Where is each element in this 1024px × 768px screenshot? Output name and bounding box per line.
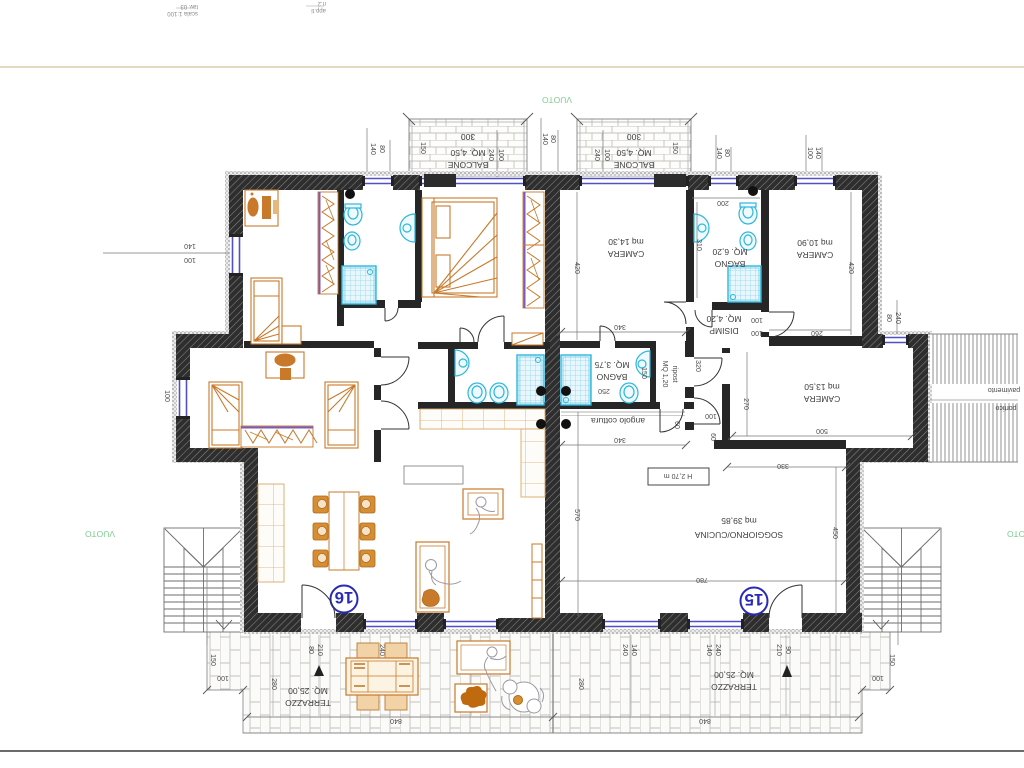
- svg-text:140: 140: [715, 147, 722, 159]
- svg-text:100: 100: [705, 412, 717, 419]
- svg-text:SOGGIORNO/CUCINA: SOGGIORNO/CUCINA: [695, 530, 784, 540]
- svg-text:300: 300: [461, 132, 475, 142]
- svg-text:270: 270: [742, 398, 749, 410]
- svg-text:840: 840: [699, 717, 711, 724]
- svg-text:BALCONE: BALCONE: [613, 160, 654, 170]
- svg-text:pavimento: pavimento: [988, 386, 1020, 393]
- svg-text:140: 140: [814, 147, 821, 159]
- svg-text:80: 80: [378, 145, 385, 153]
- svg-text:80: 80: [885, 314, 892, 322]
- svg-text:portico: portico: [995, 404, 1016, 411]
- svg-text:MQ. 4,50: MQ. 4,50: [616, 148, 651, 158]
- svg-text:100: 100: [872, 674, 884, 681]
- svg-text:MQ. 25,00: MQ. 25,00: [714, 670, 754, 680]
- svg-text:TERRAZZO: TERRAZZO: [285, 698, 331, 708]
- svg-text:90: 90: [784, 646, 791, 654]
- svg-text:scala 1:100: scala 1:100: [167, 10, 198, 16]
- svg-text:100: 100: [806, 147, 813, 159]
- svg-text:280: 280: [270, 678, 277, 690]
- svg-text:BAGNO: BAGNO: [714, 259, 745, 269]
- svg-text:H 2,70 m: H 2,70 m: [664, 472, 693, 479]
- svg-text:80: 80: [723, 149, 730, 157]
- svg-text:angolo cottura: angolo cottura: [591, 416, 645, 426]
- svg-text:TERRAZZO: TERRAZZO: [711, 682, 757, 692]
- svg-text:MQ. 6,20: MQ. 6,20: [712, 247, 747, 257]
- svg-text:320: 320: [694, 360, 701, 372]
- svg-text:n.2: n.2: [317, 0, 326, 6]
- svg-text:100: 100: [751, 316, 763, 323]
- svg-text:260: 260: [811, 329, 823, 336]
- svg-text:340: 340: [614, 323, 626, 330]
- svg-text:240: 240: [894, 312, 901, 324]
- svg-text:140: 140: [630, 644, 637, 656]
- svg-text:240: 240: [487, 149, 494, 161]
- svg-text:100: 100: [163, 390, 170, 402]
- svg-text:300: 300: [627, 132, 641, 142]
- svg-text:210: 210: [316, 644, 323, 656]
- svg-text:140: 140: [369, 143, 376, 155]
- svg-text:150: 150: [640, 367, 647, 379]
- svg-text:VUOTO: VUOTO: [1007, 529, 1024, 539]
- svg-text:mq 39,85: mq 39,85: [721, 516, 757, 526]
- svg-text:60: 60: [709, 433, 716, 441]
- svg-text:BALCONE: BALCONE: [447, 160, 488, 170]
- svg-text:15: 15: [745, 590, 764, 609]
- svg-text:100: 100: [751, 329, 763, 336]
- svg-text:app.ti: app.ti: [311, 7, 326, 13]
- svg-text:DISIMP: DISIMP: [709, 326, 739, 336]
- svg-text:240: 240: [593, 149, 600, 161]
- svg-text:100: 100: [603, 149, 610, 161]
- svg-text:780: 780: [696, 576, 708, 583]
- svg-text:100: 100: [497, 149, 504, 161]
- svg-text:MQ. 25,00: MQ. 25,00: [288, 686, 328, 696]
- svg-text:150: 150: [888, 654, 895, 666]
- svg-text:200: 200: [717, 199, 729, 206]
- svg-text:80: 80: [307, 646, 314, 654]
- svg-text:100: 100: [184, 256, 196, 263]
- svg-text:ripost: ripost: [671, 365, 678, 382]
- svg-text:210: 210: [775, 644, 782, 656]
- svg-text:BAGNO: BAGNO: [596, 372, 627, 382]
- svg-text:420: 420: [573, 262, 580, 274]
- svg-text:280: 280: [577, 678, 584, 690]
- svg-text:330: 330: [777, 462, 789, 469]
- svg-text:140: 140: [541, 133, 548, 145]
- svg-text:100: 100: [217, 674, 229, 681]
- svg-text:MQ 1,20: MQ 1,20: [661, 361, 668, 388]
- svg-text:150: 150: [671, 142, 678, 154]
- svg-text:140: 140: [184, 242, 196, 249]
- svg-text:mq 13,50: mq 13,50: [804, 382, 840, 392]
- svg-text:CAMERA: CAMERA: [607, 249, 644, 259]
- svg-text:240: 240: [714, 644, 721, 656]
- svg-text:250: 250: [598, 387, 610, 394]
- svg-text:420: 420: [847, 262, 854, 274]
- svg-text:CAMERA: CAMERA: [796, 250, 833, 260]
- svg-text:840: 840: [390, 717, 402, 724]
- svg-text:CAMERA: CAMERA: [803, 394, 840, 404]
- svg-text:150: 150: [209, 654, 216, 666]
- svg-text:310: 310: [695, 239, 702, 251]
- svg-text:mq 14,30: mq 14,30: [608, 237, 644, 247]
- svg-text:MQ. 4,50: MQ. 4,50: [450, 148, 485, 158]
- svg-text:240: 240: [621, 644, 628, 656]
- svg-text:140: 140: [705, 644, 712, 656]
- svg-text:450: 450: [831, 527, 838, 539]
- svg-text:VUOTO: VUOTO: [542, 95, 572, 105]
- svg-text:500: 500: [816, 427, 828, 434]
- svg-text:MQ. 3,75: MQ. 3,75: [594, 360, 629, 370]
- svg-text:570: 570: [573, 509, 580, 521]
- svg-text:80: 80: [549, 135, 556, 143]
- svg-text:mq 10,90: mq 10,90: [797, 238, 833, 248]
- svg-text:VUOTO: VUOTO: [85, 529, 115, 539]
- svg-text:150: 150: [419, 142, 426, 154]
- svg-text:340: 340: [614, 436, 626, 443]
- svg-text:16: 16: [335, 588, 354, 607]
